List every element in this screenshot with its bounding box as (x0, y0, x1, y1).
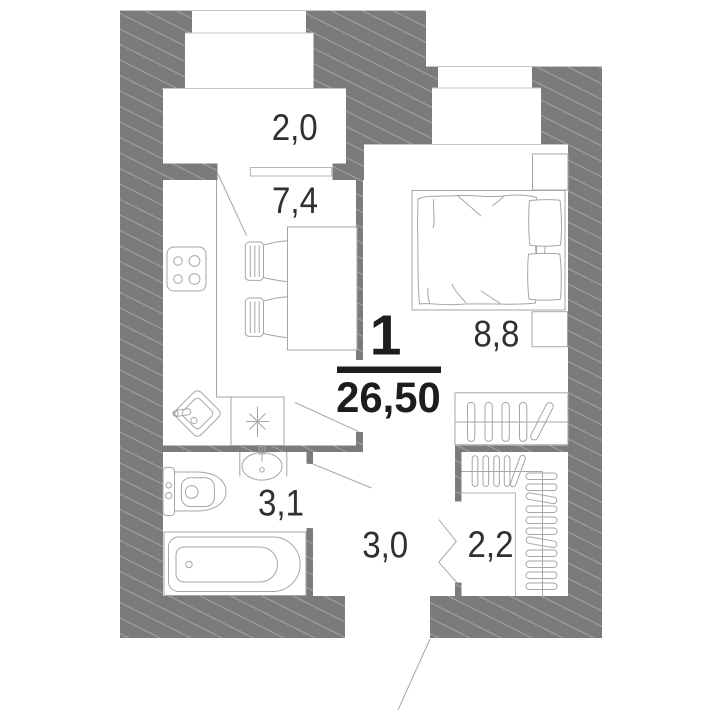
svg-text:1: 1 (370, 304, 402, 368)
svg-text:26,50: 26,50 (336, 375, 441, 422)
svg-text:3,0: 3,0 (362, 525, 408, 566)
svg-text:8,8: 8,8 (473, 313, 519, 354)
svg-text:2,0: 2,0 (272, 107, 318, 148)
svg-text:7,4: 7,4 (272, 180, 318, 221)
svg-text:2,2: 2,2 (468, 524, 514, 565)
svg-text:3,1: 3,1 (258, 483, 304, 524)
